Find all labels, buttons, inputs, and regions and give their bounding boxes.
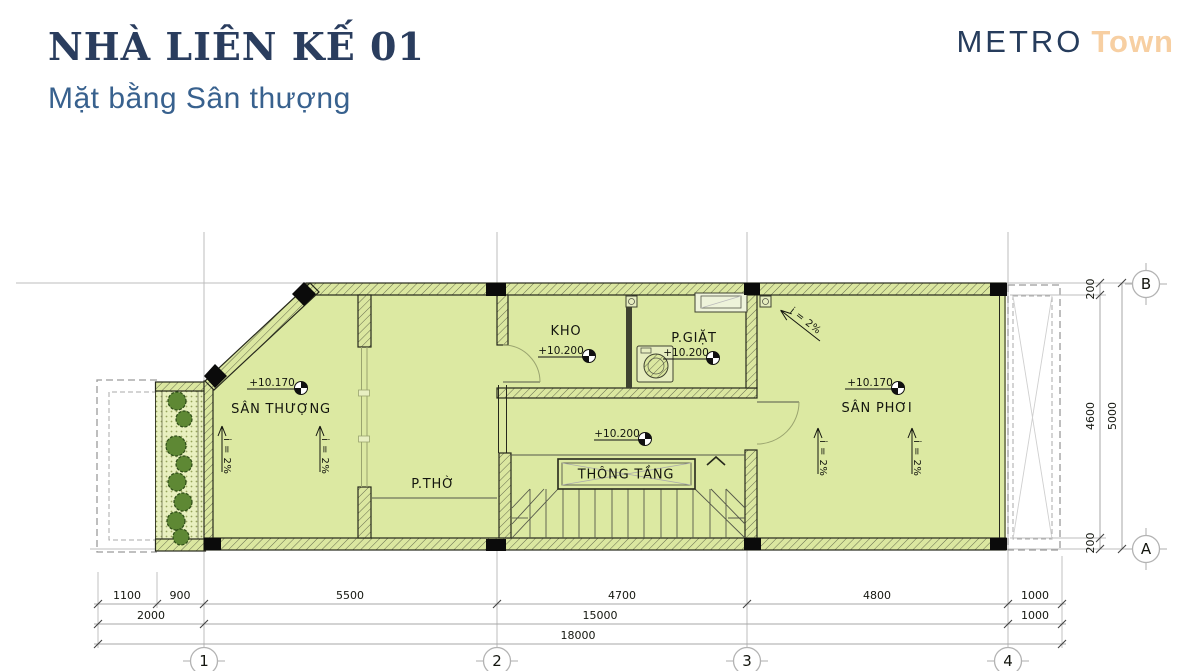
logo-town: Town <box>1091 24 1174 59</box>
slope-label: i = 2% <box>221 438 232 474</box>
dim-2000: 2000 <box>137 609 165 622</box>
grid-bubble-label: B <box>1141 275 1151 293</box>
grid-bubble-label: 4 <box>1003 652 1013 670</box>
grid-bubble-B: B <box>1125 263 1167 305</box>
grid-bubble-4: 4 <box>987 648 1029 671</box>
dim-900: 900 <box>170 589 191 602</box>
dim-200-top: 200 <box>1084 279 1097 300</box>
dim-1000-right-2: 1000 <box>1021 609 1049 622</box>
elevation-kho: +10.200 <box>538 345 584 357</box>
slope-label: i = 2% <box>911 440 922 476</box>
dim-18000: 18000 <box>561 629 596 642</box>
dim-1100: 1100 <box>113 589 141 602</box>
level-marker-icon <box>707 352 720 365</box>
dim-5000: 5000 <box>1106 402 1119 430</box>
elevation-hall: +10.200 <box>594 428 640 440</box>
room-label-p-tho: P.THỜ <box>411 476 455 492</box>
adjacent-unit-outline-right <box>1008 285 1060 550</box>
level-marker-icon <box>639 433 652 446</box>
grid-bubble-2: 2 <box>476 648 518 671</box>
grid-bubble-label: 3 <box>742 652 752 670</box>
room-label-san-thuong: SÂN THƯỢNG <box>231 401 331 417</box>
dim-200-bottom: 200 <box>1084 533 1097 554</box>
room-label-thong-tang: THÔNG TẦNG <box>577 466 675 483</box>
dim-4600: 4600 <box>1084 402 1097 430</box>
level-marker-icon <box>583 350 596 363</box>
slide: SÂN THƯỢNG +10.170 P.THỜ KHO +10.200 P.G… <box>0 0 1200 671</box>
dim-5500: 5500 <box>336 589 364 602</box>
setback-outline-left <box>97 380 157 552</box>
grid-bubble-label: 1 <box>199 652 209 670</box>
elevation-san-phoi: +10.170 <box>847 377 893 389</box>
elevation-san-thuong: +10.170 <box>249 377 295 389</box>
brand-logo: METROTown <box>956 24 1174 60</box>
slope-label: i = 2% <box>319 438 330 474</box>
slope-label: i = 2% <box>817 440 828 476</box>
dim-1000-right: 1000 <box>1021 589 1049 602</box>
planter <box>156 382 206 551</box>
grid-bubble-1: 1 <box>183 648 225 671</box>
grid-bubble-3: 3 <box>726 648 768 671</box>
page-subtitle: Mặt bằng Sân thượng <box>48 82 425 116</box>
level-marker-icon <box>892 382 905 395</box>
grid-bubble-label: 2 <box>492 652 502 670</box>
louver-niche <box>695 293 747 312</box>
logo-metro: METRO <box>956 24 1083 59</box>
grid-bubble-label: A <box>1141 540 1152 558</box>
dim-15000: 15000 <box>583 609 618 622</box>
grid-bubble-A: A <box>1125 528 1167 570</box>
room-label-kho: KHO <box>551 324 582 339</box>
room-label-p-giat: P.GIẶT <box>671 330 717 346</box>
page-title: NHÀ LIÊN KẾ 01 <box>48 26 425 68</box>
elevation-p-giat: +10.200 <box>663 347 709 359</box>
dim-4700: 4700 <box>608 589 636 602</box>
room-label-san-phoi: SÂN PHƠI <box>842 400 913 416</box>
level-marker-icon <box>295 382 308 395</box>
dim-4800: 4800 <box>863 589 891 602</box>
header: NHÀ LIÊN KẾ 01 Mặt bằng Sân thượng <box>48 26 425 116</box>
